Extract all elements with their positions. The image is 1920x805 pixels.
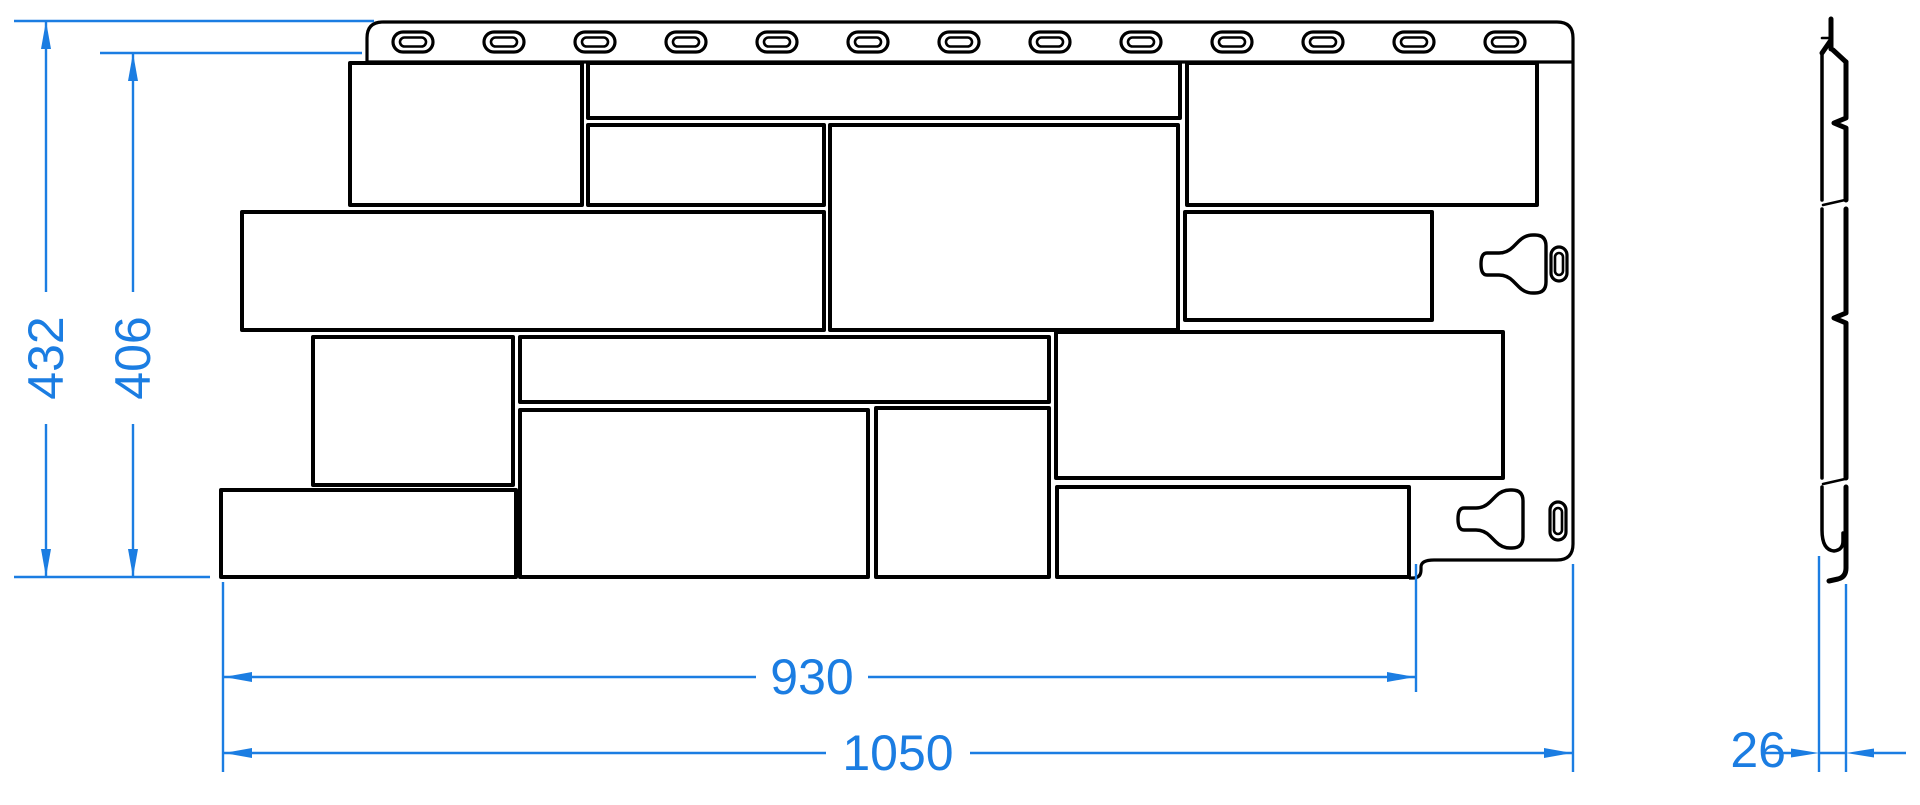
stone-pattern [221,63,1537,577]
stone-block [242,212,824,330]
fastener-slot-inner [1555,253,1563,275]
arrowhead-down-icon [128,549,138,577]
stone-block [876,408,1049,577]
profile-front-line [1829,62,1846,581]
dimension-label: 432 [18,316,74,399]
nail-slot-icon [393,32,433,52]
profile-top-hem [1822,19,1846,62]
nail-slot-icon [1394,32,1434,52]
nail-slot-icon [666,32,706,52]
nail-slot-icon [1303,32,1343,52]
stone-block [588,63,1180,118]
stone-field-width-dimension: 930 [223,564,1416,772]
nail-slot-icon [757,32,797,52]
drawing-canvas: 432 406 930 1050 [0,0,1920,805]
nail-slot-icon [1212,32,1252,52]
front-view [221,22,1573,578]
stone-block [221,490,516,577]
stone-block [350,63,582,205]
arrowhead-right-icon [1387,672,1415,682]
fastener-tab-icon [1458,490,1523,548]
nail-slot-icon [1030,32,1070,52]
arrowhead-left-icon [1846,749,1874,758]
fastener-slot-inner [1554,508,1562,534]
nail-slot-row [393,32,1525,52]
fastener-tab-icon [1481,235,1546,293]
stone-block [1056,332,1503,478]
nail-slot-icon [1485,32,1525,52]
technical-drawing: 432 406 930 1050 [0,0,1920,805]
arrowhead-right-icon [1544,748,1572,758]
nail-slot-icon [1121,32,1161,52]
arrowhead-left-icon [224,748,252,758]
extension-line [1819,556,1846,772]
nail-slot-icon [939,32,979,52]
overall-width-dimension: 1050 [224,564,1573,781]
stone-block [313,337,513,485]
nail-slot-icon [484,32,524,52]
stone-block [1185,212,1432,320]
nail-slot-icon [575,32,615,52]
thickness-dimension: 26 [1730,556,1906,778]
arrowhead-up-icon [128,53,138,81]
arrowhead-down-icon [41,549,51,577]
stone-block [520,337,1049,402]
dimension-label: 406 [105,316,161,399]
arrowhead-up-icon [41,21,51,49]
arrowhead-right-icon [1791,749,1819,758]
dimension-label: 26 [1730,722,1786,778]
stone-block [1057,487,1409,577]
profile-joint-ticks [1823,200,1845,484]
side-view [1822,19,1846,581]
dimension-label: 930 [770,649,853,705]
stone-block [520,410,868,577]
stone-block [830,125,1178,330]
dimension-label: 1050 [842,725,953,781]
stone-block [588,125,824,205]
nail-slot-icon [848,32,888,52]
stone-block [1187,63,1537,205]
arrowhead-left-icon [224,672,252,682]
